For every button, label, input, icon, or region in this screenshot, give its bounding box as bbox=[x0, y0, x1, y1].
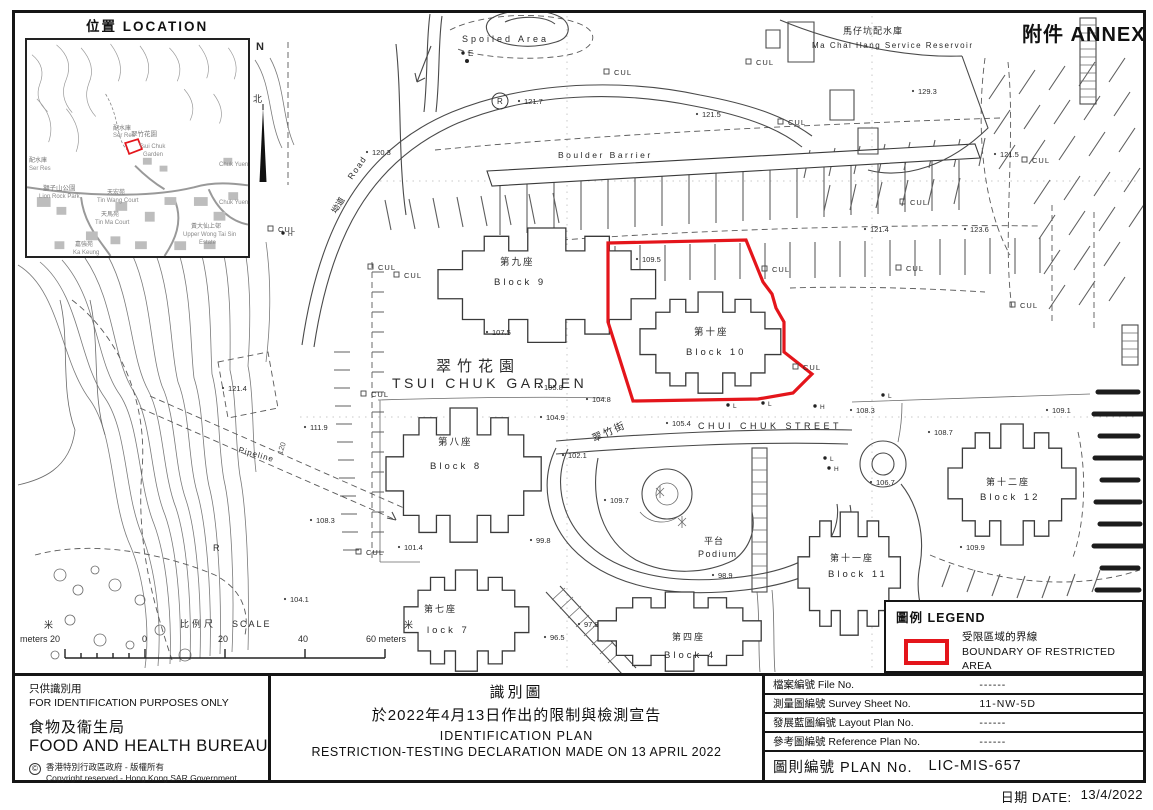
disclaimer-zh: 只供識別用 bbox=[29, 683, 268, 697]
building-block-9 bbox=[438, 228, 656, 342]
legend-item: 受限區域的界線 BOUNDARY OF RESTRICTED AREA bbox=[904, 630, 1132, 674]
plan-subtitle-en: RESTRICTION-TESTING DECLARATION MADE ON … bbox=[271, 745, 762, 759]
map-marker bbox=[881, 393, 884, 396]
titleblock-title-cell: 識別圖 於2022年4月13日作出的限制與檢測宣告 IDENTIFICATION… bbox=[271, 676, 765, 780]
map-label: CHUI CHUK STREET bbox=[698, 421, 842, 431]
map-label: CUL bbox=[788, 118, 806, 127]
legend-item-text: 受限區域的界線 BOUNDARY OF RESTRICTED AREA bbox=[962, 630, 1132, 674]
disclaimer-en: FOR IDENTIFICATION PURPOSES ONLY bbox=[29, 697, 268, 711]
map-label: Boulder Barrier bbox=[558, 150, 653, 160]
map-marker bbox=[604, 499, 606, 501]
map-marker bbox=[712, 574, 714, 576]
legend-item-en: BOUNDARY OF RESTRICTED AREA bbox=[962, 645, 1132, 674]
map-marker bbox=[912, 90, 914, 92]
legend-box: 圖例 LEGEND 受限區域的界線 BOUNDARY OF RESTRICTED… bbox=[884, 600, 1144, 673]
legend-item-zh: 受限區域的界線 bbox=[962, 630, 1132, 645]
map-label: 107.5 bbox=[492, 328, 511, 337]
map-label: 120 bbox=[275, 441, 287, 456]
building-block-10 bbox=[640, 292, 781, 393]
copyright-en: Copyright reserved - Hong Kong SAR Gover… bbox=[46, 773, 237, 783]
map-label: CUL bbox=[404, 271, 422, 280]
map-label: 121.5 bbox=[1000, 150, 1019, 159]
map-label: 第四座 bbox=[672, 631, 705, 642]
map-label: 馬仔坑配水庫 bbox=[843, 25, 903, 36]
map-marker bbox=[636, 258, 638, 260]
map-label: Block 11 bbox=[828, 569, 888, 580]
map-label: 109.7 bbox=[610, 496, 629, 505]
map-label: 105.4 bbox=[672, 419, 691, 428]
map-label: H bbox=[834, 466, 839, 473]
point-e-dot bbox=[465, 59, 469, 63]
map-label: 97.8 bbox=[584, 620, 599, 629]
inset-label: Tin Ma Court bbox=[95, 220, 129, 226]
copyright-note: © 香港特別行政區政府 - 版權所有 Copyright reserved - … bbox=[29, 762, 268, 783]
plan-number-label: 圖則編號 PLAN No. bbox=[773, 756, 913, 777]
map-label: 108.7 bbox=[934, 428, 953, 437]
inset-label: 天宏苑 bbox=[107, 190, 125, 196]
map-label: 第七座 bbox=[424, 603, 457, 614]
bureau-name-zh: 食物及衞生局 bbox=[29, 716, 268, 737]
map-marker bbox=[361, 391, 366, 396]
map-label: 104.8 bbox=[592, 395, 611, 404]
title-block: 只供識別用 FOR IDENTIFICATION PURPOSES ONLY 食… bbox=[12, 673, 1146, 783]
map-label: CUL bbox=[366, 548, 384, 557]
inset-label: Upper Wong Tai Sin bbox=[183, 232, 236, 238]
plan-number-row: 圖則編號 PLAN No. LIC-MIS-657 bbox=[765, 752, 1143, 780]
building-block-8 bbox=[386, 408, 541, 542]
plan-title-zh: 識別圖 bbox=[271, 681, 762, 702]
map-label: CUL bbox=[803, 363, 821, 372]
map-label: 129.3 bbox=[918, 87, 937, 96]
map-label: Block 10 bbox=[686, 347, 746, 358]
legend-title: 圖例 LEGEND bbox=[896, 607, 1132, 626]
map-marker bbox=[1022, 157, 1027, 162]
map-label: 121.7 bbox=[524, 97, 543, 106]
map-label: 99.8 bbox=[536, 536, 551, 545]
map-marker bbox=[666, 422, 668, 424]
map-marker bbox=[544, 636, 546, 638]
map-marker bbox=[928, 431, 930, 433]
map-label: Pipeline bbox=[237, 445, 275, 464]
map-label: 121.5 bbox=[702, 110, 721, 119]
titleblock-field-value: ------ bbox=[979, 736, 1006, 748]
map-label: L bbox=[888, 393, 892, 400]
map-label: CUL bbox=[906, 264, 924, 273]
map-marker bbox=[793, 364, 798, 369]
map-marker bbox=[813, 404, 816, 407]
map-marker bbox=[281, 231, 284, 234]
map-label: Ma Chai Hang Service Reservoir bbox=[812, 41, 974, 50]
inset-label: Chuk Yuen bbox=[219, 162, 248, 168]
map-label: 60 meters bbox=[366, 634, 407, 644]
map-marker bbox=[778, 119, 783, 124]
map-label: 123.6 bbox=[970, 225, 989, 234]
map-label: 0 bbox=[142, 634, 147, 644]
inset-label: Tin Wang Court bbox=[97, 198, 139, 204]
map-label: CUL bbox=[910, 198, 928, 207]
titleblock-field-value: ------ bbox=[979, 679, 1006, 691]
date-label: 日期 DATE: bbox=[1001, 787, 1072, 806]
map-label: meters 20 bbox=[20, 634, 60, 644]
map-marker bbox=[696, 113, 698, 115]
map-label: R bbox=[213, 543, 220, 553]
map-label: Block 8 bbox=[430, 461, 482, 472]
location-inset-title: 位置 LOCATION bbox=[86, 15, 208, 35]
plan-number-value: LIC-MIS-657 bbox=[929, 758, 1022, 774]
map-label: Block 9 bbox=[494, 277, 546, 288]
map-marker bbox=[518, 100, 520, 102]
bureau-name-en: FOOD AND HEALTH BUREAU bbox=[29, 737, 268, 756]
titleblock-field-value: ------ bbox=[979, 717, 1006, 729]
map-label: 109.1 bbox=[1052, 406, 1071, 415]
map-label: 96.5 bbox=[550, 633, 565, 642]
map-label: 121.4 bbox=[870, 225, 889, 234]
map-label: Block 12 bbox=[980, 492, 1040, 503]
annex-label: 附件 ANNEX bbox=[1022, 18, 1146, 47]
map-label: 102.1 bbox=[568, 451, 587, 460]
map-marker bbox=[960, 546, 962, 548]
inset-label: 配水庫 bbox=[113, 126, 131, 132]
map-label: 平台 bbox=[704, 535, 724, 546]
map-marker bbox=[604, 69, 609, 74]
copyright-icon: © bbox=[29, 763, 41, 775]
map-label: CUL bbox=[614, 68, 632, 77]
map-marker bbox=[398, 546, 400, 548]
map-marker bbox=[1010, 302, 1015, 307]
map-label: SCALE bbox=[232, 619, 272, 629]
titleblock-field-value: 11-NW-5D bbox=[979, 698, 1036, 710]
map-label: L bbox=[768, 401, 772, 408]
inset-label: 黃大仙上邨 bbox=[191, 224, 221, 230]
inset-label: 翠竹花園 bbox=[131, 132, 157, 139]
map-label: E bbox=[468, 49, 473, 58]
map-label: 120.3 bbox=[372, 148, 391, 157]
map-marker bbox=[222, 387, 224, 389]
map-label: H bbox=[820, 404, 825, 411]
map-marker bbox=[864, 228, 866, 230]
titleblock-fields: 檔案編號 File No.------測量圖編號 Survey Sheet No… bbox=[765, 676, 1143, 752]
copyright-zh: 香港特別行政區政府 - 版權所有 bbox=[46, 762, 164, 772]
map-label: 98.9 bbox=[718, 571, 733, 580]
inset-label: Chuk Yuen bbox=[219, 200, 248, 206]
map-label: 109.5 bbox=[642, 255, 661, 264]
map-label: Spoiled Area bbox=[462, 34, 549, 44]
map-label: lock 7 bbox=[427, 625, 470, 636]
map-marker bbox=[823, 456, 826, 459]
map-label: 翠竹街 bbox=[590, 418, 628, 445]
map-marker bbox=[896, 265, 901, 270]
map-marker bbox=[746, 59, 751, 64]
map-marker bbox=[586, 398, 588, 400]
map-label: 104.9 bbox=[546, 413, 565, 422]
map-marker bbox=[366, 151, 368, 153]
map-label: 104.1 bbox=[290, 595, 309, 604]
plan-subtitle-zh: 於2022年4月13日作出的限制與檢測宣告 bbox=[271, 704, 762, 725]
inset-label: 獅子山公園 bbox=[43, 186, 76, 193]
map-marker bbox=[827, 466, 830, 469]
map-marker bbox=[461, 51, 464, 54]
inset-label: Garden bbox=[143, 152, 163, 158]
inset-label: 天馬苑 bbox=[101, 212, 119, 218]
titleblock-field-row: 發展藍圖編號 Layout Plan No.------ bbox=[765, 714, 1143, 733]
rock-outcrop-symbols bbox=[1094, 392, 1142, 610]
titleblock-field-label: 參考圖編號 Reference Plan No. bbox=[773, 734, 979, 749]
inset-label: Tsui Chuk bbox=[139, 144, 165, 150]
map-label: N bbox=[256, 41, 264, 53]
map-marker bbox=[394, 272, 399, 277]
map-label: Road bbox=[345, 154, 368, 181]
map-label: 比例尺 bbox=[180, 618, 216, 629]
map-label: 40 bbox=[298, 634, 308, 644]
map-marker bbox=[850, 409, 852, 411]
map-label: L bbox=[733, 403, 737, 410]
map-label: CUL bbox=[1032, 156, 1050, 165]
map-label: 111.9 bbox=[310, 423, 328, 432]
map-label: L bbox=[830, 456, 834, 463]
titleblock-field-row: 參考圖編號 Reference Plan No.------ bbox=[765, 733, 1143, 752]
location-inset-map: 配水庫Ser Res翠竹花園Tsui ChukGarden配水庫Ser Res獅… bbox=[25, 38, 250, 258]
map-label: 米 bbox=[404, 619, 413, 630]
map-marker bbox=[530, 539, 532, 541]
map-marker bbox=[1046, 409, 1048, 411]
map-marker bbox=[994, 153, 996, 155]
map-marker bbox=[540, 416, 542, 418]
map-label: 106.7 bbox=[876, 478, 895, 487]
map-label: 108.3 bbox=[316, 516, 335, 525]
map-label: 坳道 bbox=[329, 195, 347, 215]
map-marker bbox=[964, 228, 966, 230]
map-marker bbox=[578, 623, 580, 625]
scale-bar bbox=[65, 649, 385, 658]
titleblock-field-label: 檔案編號 File No. bbox=[773, 677, 979, 692]
date-line: 日期 DATE: 13/4/2022 bbox=[1001, 787, 1143, 806]
map-label: CUL bbox=[278, 225, 296, 234]
map-label: R bbox=[497, 97, 503, 106]
date-value: 13/4/2022 bbox=[1081, 787, 1143, 806]
map-marker bbox=[538, 386, 540, 388]
map-marker bbox=[870, 481, 872, 483]
inset-label: Ser Res bbox=[29, 166, 51, 172]
inset-label: Estate bbox=[199, 240, 216, 246]
plan-title-en: IDENTIFICATION PLAN bbox=[271, 729, 762, 743]
titleblock-field-row: 檔案編號 File No.------ bbox=[765, 676, 1143, 695]
map-label: CUL bbox=[756, 58, 774, 67]
map-label: 105.8 bbox=[544, 383, 563, 392]
map-marker bbox=[304, 426, 306, 428]
map-label: 108.3 bbox=[856, 406, 875, 415]
map-label: Podium bbox=[698, 549, 738, 559]
map-label: 第十二座 bbox=[986, 476, 1030, 487]
inset-park-boundary bbox=[106, 94, 128, 150]
map-label: CUL bbox=[1020, 301, 1038, 310]
map-marker bbox=[486, 331, 488, 333]
map-label: 121.4 bbox=[228, 384, 247, 393]
map-label: H bbox=[288, 231, 293, 238]
building-block-7 bbox=[404, 570, 529, 671]
map-label: 第十一座 bbox=[830, 552, 874, 563]
north-arrow-icon bbox=[260, 104, 267, 182]
titleblock-fields-cell: 檔案編號 File No.------測量圖編號 Survey Sheet No… bbox=[765, 676, 1143, 780]
map-marker bbox=[562, 454, 564, 456]
map-marker bbox=[726, 403, 729, 406]
map-label: 第九座 bbox=[500, 256, 535, 268]
inset-label: Lion Rock Park bbox=[39, 194, 80, 200]
map-marker bbox=[310, 519, 312, 521]
map-marker bbox=[761, 401, 764, 404]
map-label: 北 bbox=[253, 94, 262, 104]
map-label: 翠竹花園 bbox=[436, 358, 520, 375]
map-marker bbox=[284, 598, 286, 600]
titleblock-field-row: 測量圖編號 Survey Sheet No.11-NW-5D bbox=[765, 695, 1143, 714]
map-label: 101.4 bbox=[404, 543, 423, 552]
titleblock-bureau-cell: 只供識別用 FOR IDENTIFICATION PURPOSES ONLY 食… bbox=[15, 676, 271, 780]
map-label: 第八座 bbox=[438, 436, 473, 448]
titleblock-field-label: 測量圖編號 Survey Sheet No. bbox=[773, 696, 979, 711]
map-marker bbox=[268, 226, 273, 231]
map-label: CUL bbox=[378, 263, 396, 272]
inset-label: 嘉強苑 bbox=[75, 242, 93, 248]
copyright-text: 香港特別行政區政府 - 版權所有 Copyright reserved - Ho… bbox=[46, 762, 237, 783]
inset-label: 配水庫 bbox=[29, 158, 47, 164]
map-label: 米 bbox=[44, 619, 53, 630]
map-label: 109.9 bbox=[966, 543, 985, 552]
identification-plan-page: Spoiled AreaEBoulder Barrier馬仔坑配水庫Ma Cha… bbox=[0, 0, 1153, 810]
inset-label: Ka Keung bbox=[73, 250, 99, 256]
map-label: 20 bbox=[218, 634, 228, 644]
map-label: Block 4 bbox=[664, 650, 716, 661]
titleblock-field-label: 發展藍圖編號 Layout Plan No. bbox=[773, 715, 979, 730]
restricted-boundary-swatch bbox=[904, 639, 949, 665]
map-label: CUL bbox=[371, 390, 389, 399]
map-label: 第十座 bbox=[694, 326, 729, 338]
map-label: CUL bbox=[772, 265, 790, 274]
